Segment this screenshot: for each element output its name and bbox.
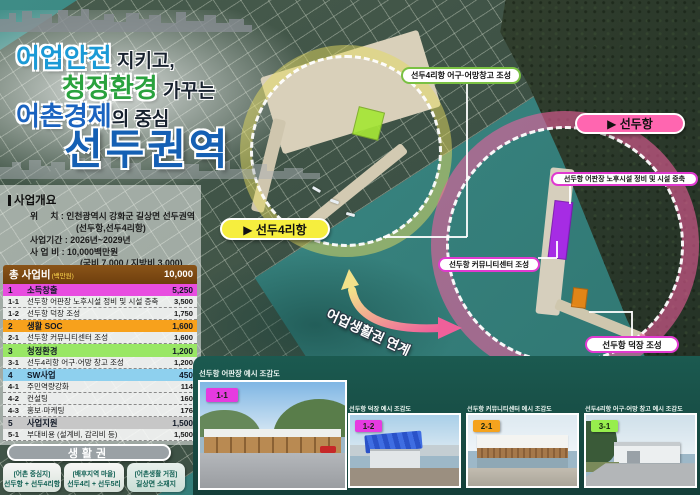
budget-total: 10,000: [164, 269, 193, 280]
photo-badge: 3-1: [591, 420, 618, 432]
render-ground: [350, 468, 459, 486]
city-skyline-icon: [0, 6, 252, 32]
overview-heading: 사업개요: [8, 192, 56, 208]
label-seonduhang-port: ▶ 선두항: [575, 113, 685, 134]
photo-caption: 선두항 어판장 예시 조감도: [199, 368, 347, 379]
budget-table-header: 총 사업비 (백만원) 10,000: [3, 265, 197, 284]
table-row: 1소득창출5,250: [3, 284, 197, 296]
render-building-body: [370, 449, 420, 467]
render-building-wood-band: [477, 448, 569, 458]
render-car: [320, 446, 336, 453]
render-building-upper: [477, 435, 569, 448]
table-row: 2-1선두항 커뮤니티센터 조성1,600: [3, 332, 197, 344]
render-warehouse-door: [627, 451, 640, 464]
leader-line: [589, 311, 632, 313]
table-row: 1-2선두항 덕장 조성1,750: [3, 308, 197, 320]
table-row: 5-1부대비용 (설계비, 감리비 등)1,500: [3, 429, 197, 441]
zone-tag: [어촌 중심지]: [14, 468, 51, 478]
table-row: 3청정환경1,200: [3, 344, 197, 356]
zone-value: 길상면 소재지: [136, 478, 176, 488]
living-zone-box-hinterland: [배후지역 마을] 선두4리 + 선두5리: [64, 463, 124, 492]
leader-line: [538, 257, 557, 259]
render-building-roof: [204, 429, 340, 437]
photo-warehouse-render: 3-1: [584, 413, 697, 488]
living-zone-header: 생활권: [7, 444, 171, 461]
zone-tag: [어촌생활 거점]: [135, 468, 178, 478]
label-fishmarket-project: 선두항 어판장 노후시설 정비 및 시설 증축: [551, 172, 698, 186]
zone-tag: [배후지역 마을]: [73, 468, 116, 478]
photo-caption: 선두항 덕장 예시 조감도: [349, 404, 462, 413]
table-row: 4SW사업450: [3, 369, 197, 381]
deokjang-site-highlight: [571, 287, 588, 309]
poster: 선두4리항 어구·어망창고 조성 선두항 어판장 노후시설 정비 및 시설 증축…: [0, 0, 700, 495]
table-row: 1-1선두항 어판장 노후시설 정비 및 시설 증축3,500: [3, 296, 197, 308]
label-seondu4ri-port: ▶ 선두4리항: [220, 218, 330, 240]
photo-caption: 선두4리항 어구·어망 창고 예시 조감도: [585, 404, 698, 413]
leader-line: [556, 241, 558, 258]
render-road: [586, 463, 695, 486]
table-row: 4-1주민역량강화114: [3, 381, 197, 393]
living-zone-box-center: [어촌 중심지] 선두항 + 선두4리항: [3, 463, 61, 492]
photo-deokjang-render: 1-2: [348, 413, 461, 488]
page-title: 선두권역: [64, 116, 231, 177]
photo-badge: 2-1: [473, 420, 500, 432]
leader-line: [466, 84, 468, 237]
table-row: 3-1선두4리항 어구·어망 창고 조성1,200: [3, 357, 197, 369]
render-warehouse: [614, 442, 679, 463]
photo-fishmarket-render: 1-1: [198, 380, 347, 490]
leader-line: [383, 236, 467, 238]
heading-bar-icon: [8, 195, 11, 206]
label-warehouse-project: 선두4리항 어구·어망창고 조성: [401, 67, 521, 84]
render-ground: [468, 468, 577, 486]
label-deokjang-project: 선두항 덕장 조성: [585, 336, 679, 353]
render-parking-lot: [200, 453, 345, 488]
budget-title: 총 사업비: [9, 267, 51, 282]
zone-value: 선두4리 + 선두5리: [67, 478, 121, 488]
table-row: 5사업지원1,500: [3, 417, 197, 429]
photo-badge: 1-1: [206, 388, 238, 402]
photo-community-center-render: 2-1: [466, 413, 579, 488]
render-building-glass: [477, 458, 569, 468]
budget-unit: (백만원): [52, 270, 74, 280]
zone-value: 선두항 + 선두4리항: [4, 478, 60, 488]
leader-line: [631, 311, 633, 337]
photo-badge: 1-2: [355, 420, 382, 432]
table-row: 2생활 SOC1,600: [3, 320, 197, 332]
leader-line: [569, 186, 571, 204]
photo-caption: 선두항 커뮤니티센터 예시 조감도: [467, 404, 580, 413]
table-row: 4-2컨설팅160: [3, 393, 197, 405]
budget-table: 총 사업비 (백만원) 10,000 1소득창출5,250 1-1선두항 어판장…: [3, 265, 197, 441]
table-row: 4-3홍보·마케팅176: [3, 405, 197, 417]
living-zone-box-base: [어촌생활 거점] 길상면 소재지: [127, 463, 185, 492]
